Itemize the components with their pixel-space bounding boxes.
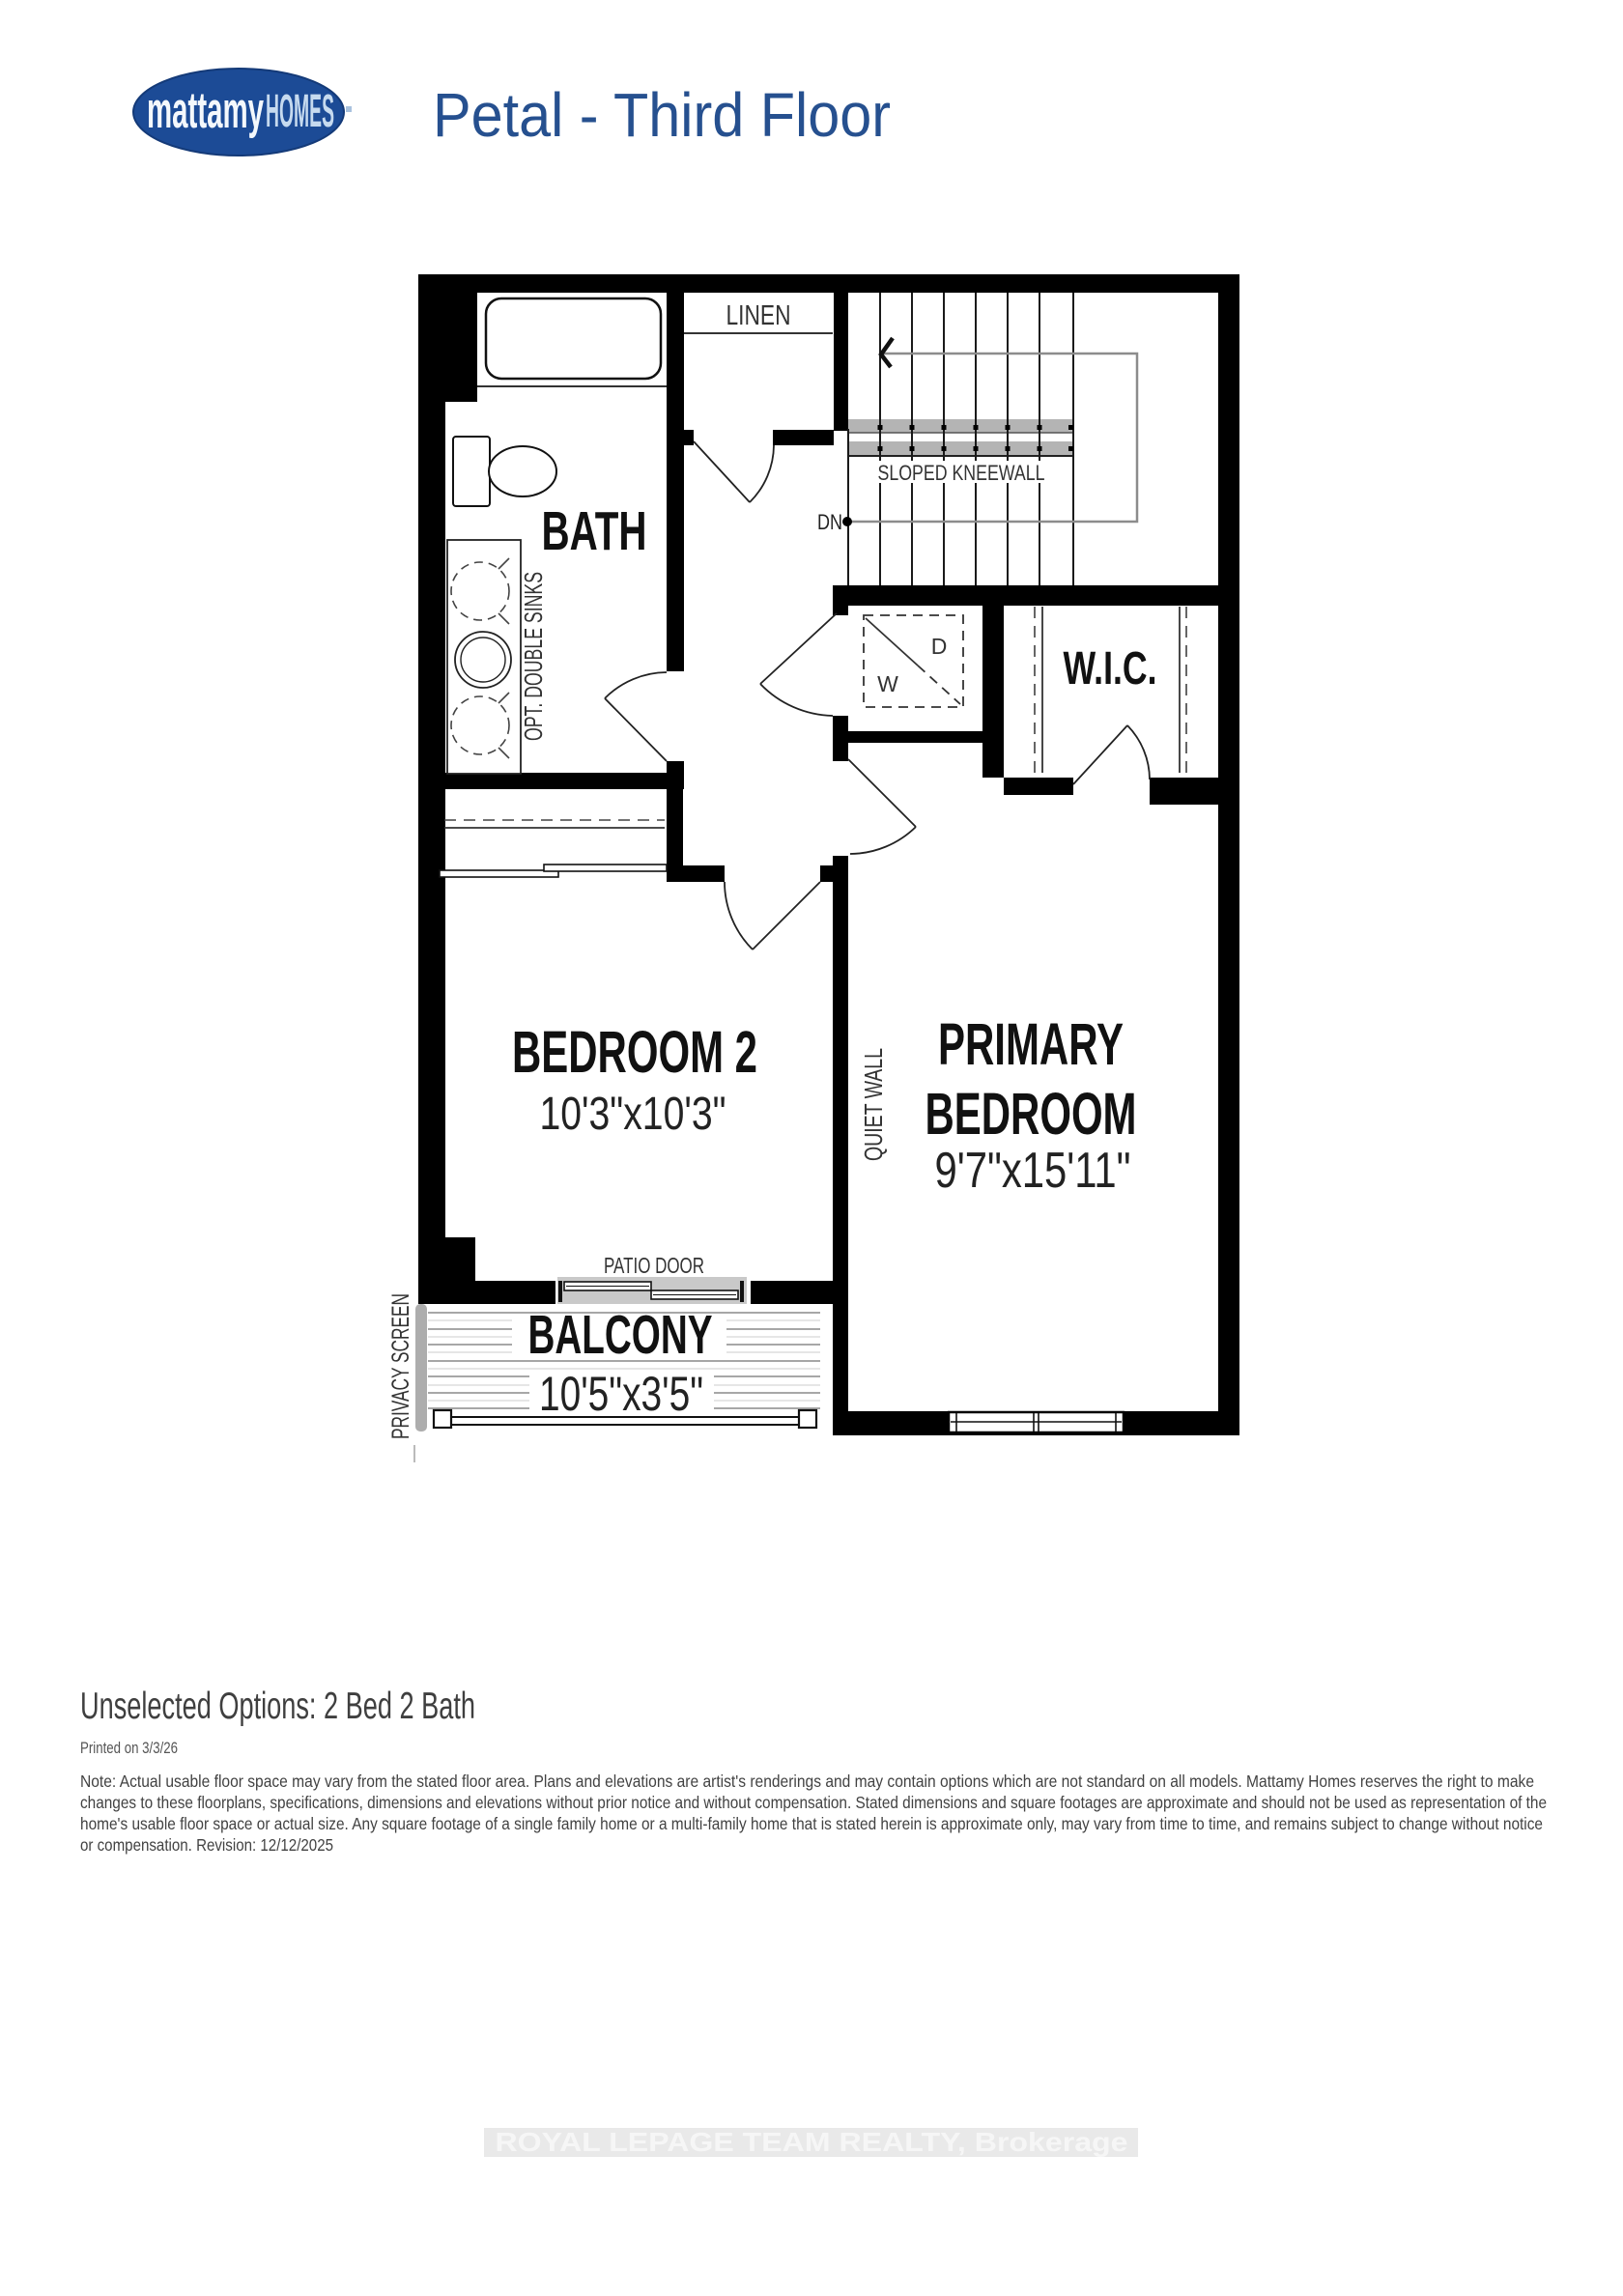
svg-text:or compensation. Revision: 12/: or compensation. Revision: 12/12/2025 [80, 1835, 333, 1855]
svg-text:BEDROOM 2: BEDROOM 2 [512, 1019, 757, 1085]
svg-text:10'3"x10'3": 10'3"x10'3" [540, 1089, 726, 1140]
svg-text:9'7"x15'11": 9'7"x15'11" [935, 1143, 1131, 1199]
svg-text:LINEN: LINEN [726, 300, 791, 331]
svg-text:D: D [931, 634, 948, 659]
svg-text:SLOPED KNEEWALL: SLOPED KNEEWALL [878, 461, 1045, 485]
svg-text:Petal - Third Floor: Petal - Third Floor [433, 80, 891, 150]
svg-text:W: W [877, 671, 898, 696]
svg-text:home's usable floor space or a: home's usable floor space or actual size… [80, 1814, 1543, 1833]
svg-text:PRIMARY: PRIMARY [938, 1011, 1124, 1077]
svg-text:Unselected Options: 2 Bed 2 Ba: Unselected Options: 2 Bed 2 Bath [80, 1686, 475, 1727]
svg-text:BEDROOM: BEDROOM [925, 1081, 1137, 1147]
svg-text:BATH: BATH [542, 500, 647, 562]
svg-text:BALCONY: BALCONY [528, 1304, 713, 1366]
svg-text:W.I.C.: W.I.C. [1064, 643, 1157, 694]
svg-text:OPT. DOUBLE SINKS: OPT. DOUBLE SINKS [519, 572, 548, 741]
svg-text:PATIO DOOR: PATIO DOOR [604, 1253, 704, 1278]
svg-text:changes to these floorplans, s: changes to these floorplans, specificati… [80, 1793, 1547, 1812]
svg-text:DN: DN [817, 510, 842, 534]
svg-text:mattamy: mattamy [147, 82, 264, 139]
svg-text:Printed on 3/3/26: Printed on 3/3/26 [80, 1739, 178, 1757]
svg-text:ROYAL LEPAGE TEAM REALTY, Brok: ROYAL LEPAGE TEAM REALTY, Brokerage [496, 2127, 1128, 2157]
svg-text:HOMES: HOMES [266, 86, 334, 137]
svg-text:Note: Actual usable floor spac: Note: Actual usable floor space may vary… [80, 1772, 1534, 1791]
svg-text:QUIET WALL: QUIET WALL [859, 1048, 888, 1161]
svg-text:PRIVACY SCREEN: PRIVACY SCREEN [387, 1293, 414, 1439]
svg-text:10'5"x3'5": 10'5"x3'5" [539, 1367, 703, 1421]
